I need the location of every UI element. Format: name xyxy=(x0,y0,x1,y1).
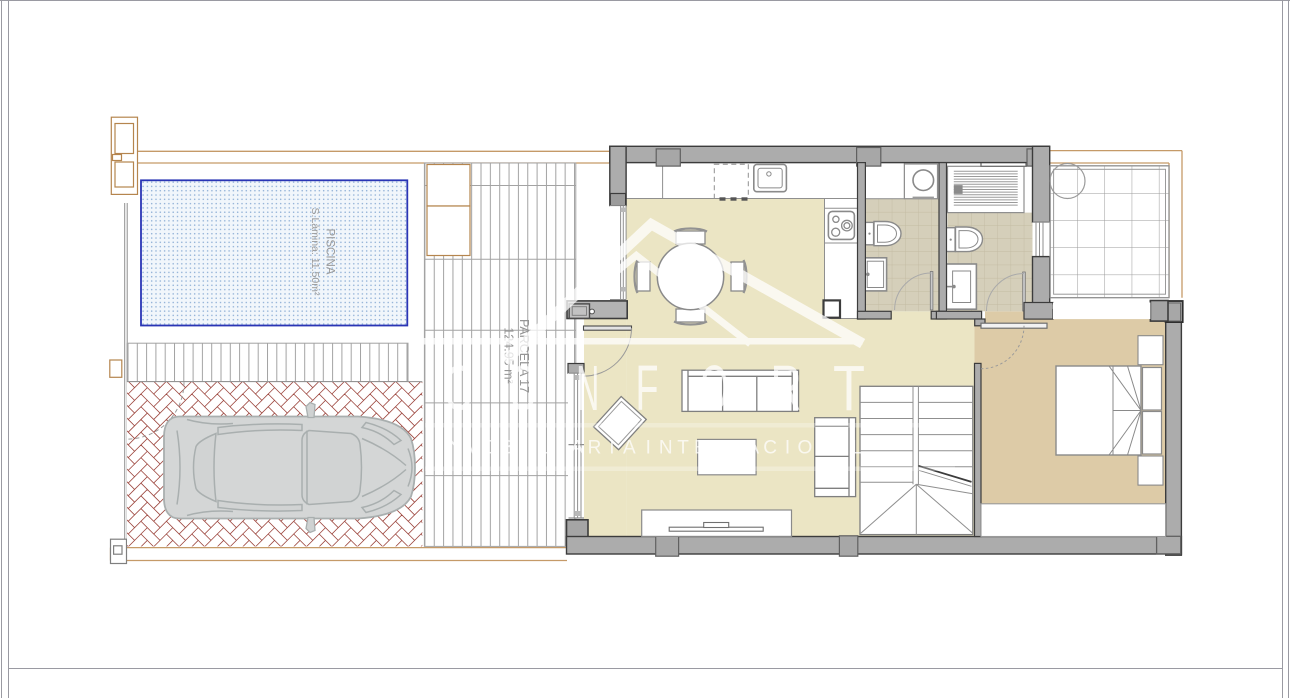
svg-text:I: I xyxy=(522,438,527,459)
svg-text:A: A xyxy=(746,438,759,459)
svg-text:N: N xyxy=(448,438,462,459)
svg-text:O: O xyxy=(798,438,813,459)
svg-text:S.Lámina: 11.50m²: S.Lámina: 11.50m² xyxy=(309,208,321,296)
svg-text:N: N xyxy=(576,352,599,424)
svg-text:F: F xyxy=(636,352,659,424)
svg-text:I: I xyxy=(646,438,651,459)
svg-text:O: O xyxy=(509,352,538,424)
svg-text:I: I xyxy=(785,438,790,459)
svg-text:M: M xyxy=(465,438,481,459)
svg-text:N: N xyxy=(815,438,829,459)
svg-text:PISCINA: PISCINA xyxy=(324,228,336,274)
svg-text:L: L xyxy=(537,438,548,459)
svg-text:C: C xyxy=(444,352,473,424)
svg-text:T: T xyxy=(677,438,689,459)
svg-text:O: O xyxy=(700,352,729,424)
svg-text:B: B xyxy=(501,438,514,459)
svg-text:R: R xyxy=(771,352,802,424)
svg-text:A: A xyxy=(623,438,636,459)
svg-text:T: T xyxy=(833,352,865,424)
svg-text:A: A xyxy=(571,438,584,459)
svg-text:I: I xyxy=(609,438,614,459)
svg-text:N: N xyxy=(659,438,673,459)
svg-text:C: C xyxy=(763,438,777,459)
svg-text:A: A xyxy=(833,438,846,459)
svg-text:R: R xyxy=(711,438,725,459)
svg-text:E: E xyxy=(694,438,707,459)
svg-text:N: N xyxy=(728,438,742,459)
svg-text:I: I xyxy=(435,438,440,459)
svg-text:O: O xyxy=(483,438,498,459)
svg-text:L: L xyxy=(852,438,863,459)
svg-text:I: I xyxy=(557,438,562,459)
svg-text:R: R xyxy=(588,438,602,459)
